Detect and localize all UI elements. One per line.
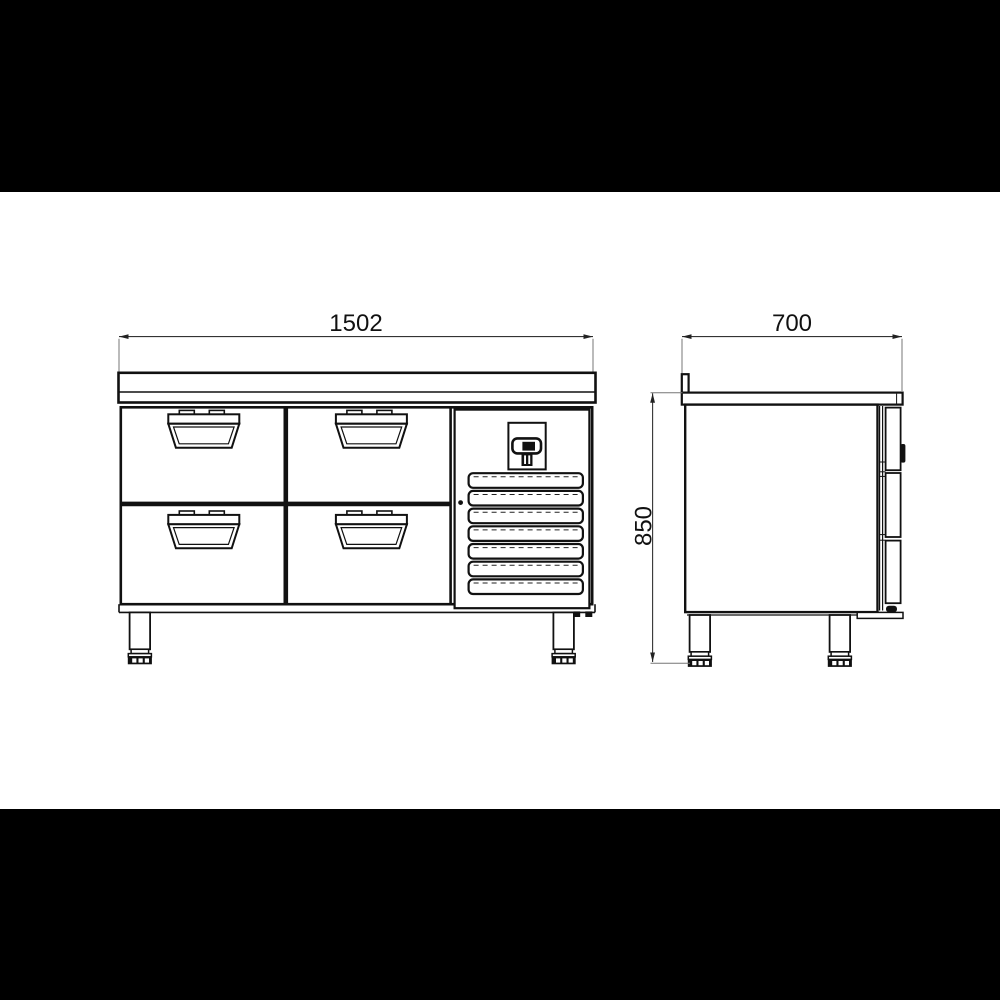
leg-front-right	[552, 612, 575, 663]
door-hinge-pin	[458, 500, 463, 505]
drawer-front-panel-1	[886, 408, 901, 471]
leg-side-front	[688, 615, 711, 666]
door-bottom-fitting	[585, 611, 592, 617]
depth-label: 700	[772, 310, 812, 337]
drawer-handle-top-right	[336, 410, 407, 447]
technical-drawing-page: 1502 700 850	[0, 0, 1000, 1000]
power-switch-panel	[508, 423, 545, 470]
drawer-front-panel-3	[886, 541, 901, 604]
worktop-side	[682, 393, 903, 405]
drawer-handle-top-left	[168, 410, 239, 447]
ventilation-grille	[469, 473, 583, 594]
handle-profile-side	[901, 444, 906, 463]
refrigerated-counter-technical-drawing: 1502 700 850	[0, 0, 1000, 1000]
vent-slat	[469, 526, 583, 541]
drawer-handle-bottom-right	[336, 511, 407, 548]
vent-slat	[469, 491, 583, 506]
vent-slat	[469, 473, 583, 488]
compressor-door	[455, 410, 593, 617]
plug-icon	[522, 453, 533, 466]
drawer-front-panel-2	[886, 473, 901, 537]
letterbox-top	[0, 0, 1000, 192]
door-bottom-roller	[886, 606, 897, 612]
vent-slat	[469, 509, 583, 524]
leg-side-rear	[828, 615, 851, 666]
cabinet-body-side	[685, 405, 877, 612]
drawer-fronts-side	[886, 408, 901, 604]
worktop-front	[119, 373, 596, 403]
drawer-handle-bottom-left	[168, 511, 239, 548]
letterbox-bottom	[0, 809, 1000, 1000]
leg-front-left	[128, 612, 151, 663]
vent-slat	[469, 579, 583, 594]
bottom-plate-side	[857, 612, 903, 618]
front-width-label: 1502	[329, 310, 382, 337]
backsplash-side	[682, 374, 689, 392]
vent-slat	[469, 544, 583, 559]
height-label: 850	[631, 506, 658, 546]
vent-slat	[469, 562, 583, 577]
